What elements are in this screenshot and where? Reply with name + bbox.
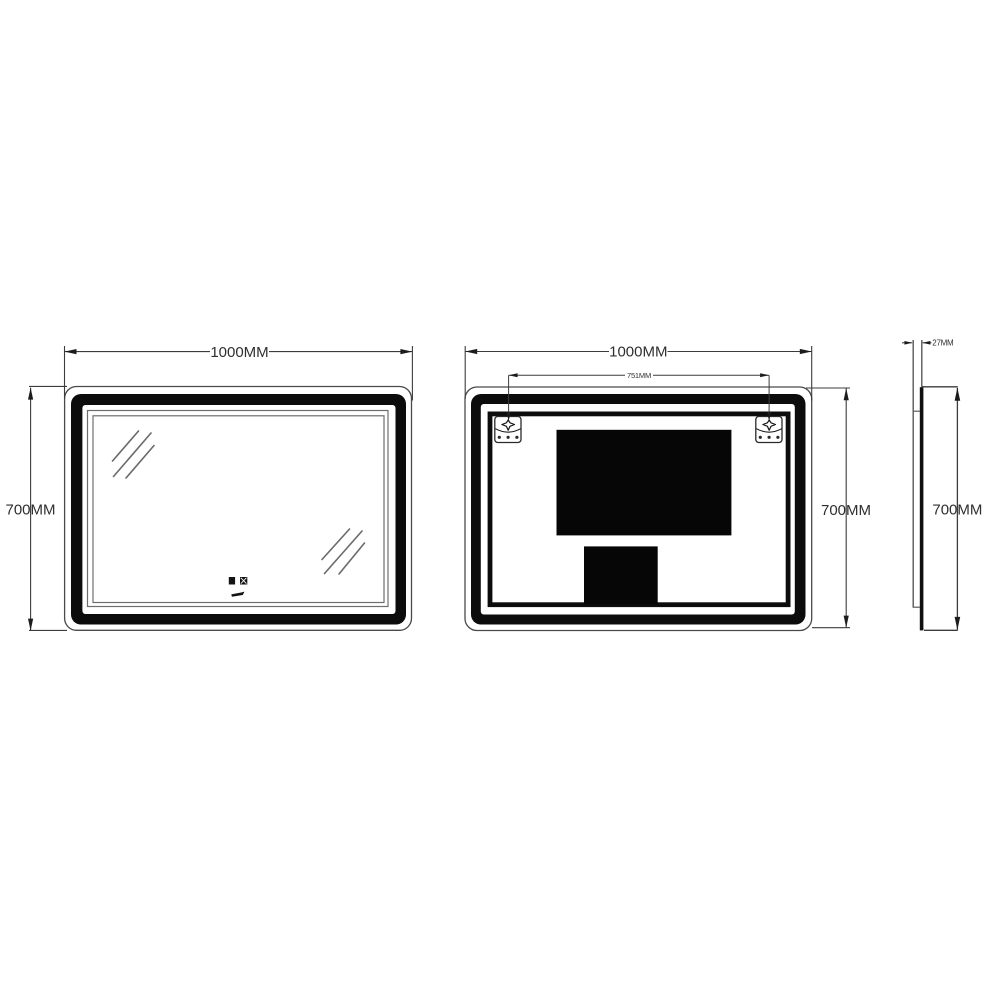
svg-text:1000MM: 1000MM — [210, 344, 268, 361]
svg-text:700MM: 700MM — [821, 502, 871, 519]
svg-text:700MM: 700MM — [932, 502, 982, 519]
svg-text:700MM: 700MM — [5, 502, 55, 519]
svg-text:751MM: 751MM — [627, 371, 651, 380]
svg-text:1000MM: 1000MM — [609, 344, 667, 361]
svg-text:27MM: 27MM — [932, 339, 954, 348]
